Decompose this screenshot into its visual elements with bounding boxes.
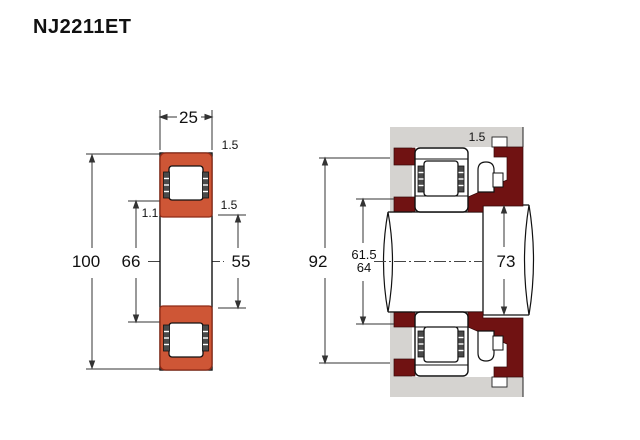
relief-notch-bottom [493, 336, 503, 350]
mounted-bearing-top [415, 148, 468, 212]
top-roller [169, 166, 203, 200]
dim-outer-diameter: 100 [72, 252, 100, 271]
dim-rib-chamfer: 1.1 [142, 206, 159, 220]
groove-slot-bottom [492, 377, 507, 387]
dim-rib-diameter: 66 [122, 252, 141, 271]
dim-width: 25 [179, 108, 198, 127]
dim-housing-abutment: 92 [309, 252, 328, 271]
angle-ring-top [478, 162, 494, 192]
dim-groove-width: 1.5 [469, 130, 486, 144]
angle-ring-bottom [478, 331, 494, 361]
dim-bore-diameter: 55 [232, 252, 251, 271]
dim-outer-chamfer: 1.5 [222, 138, 239, 152]
part-number-title: NJ2211ET [33, 16, 132, 38]
mounted-bearing-bottom [415, 312, 468, 376]
dim-inner-chamfer: 1.5 [221, 198, 238, 212]
dim-shaft-abutment-lower: 64 [357, 260, 371, 275]
groove-slot-top [492, 137, 507, 147]
dim-shaft-shoulder: 73 [497, 252, 516, 271]
bearing-drawing: NJ2211ET [0, 0, 640, 440]
relief-notch-top [493, 173, 503, 187]
right-view-mounting: 92 61.5 64 73 1.5 [309, 127, 534, 397]
bottom-roller [169, 323, 203, 357]
left-view-cross-section: 25 1.5 1.5 1.1 100 66 55 [72, 108, 251, 370]
drawing-canvas: NJ2211ET [0, 0, 640, 440]
